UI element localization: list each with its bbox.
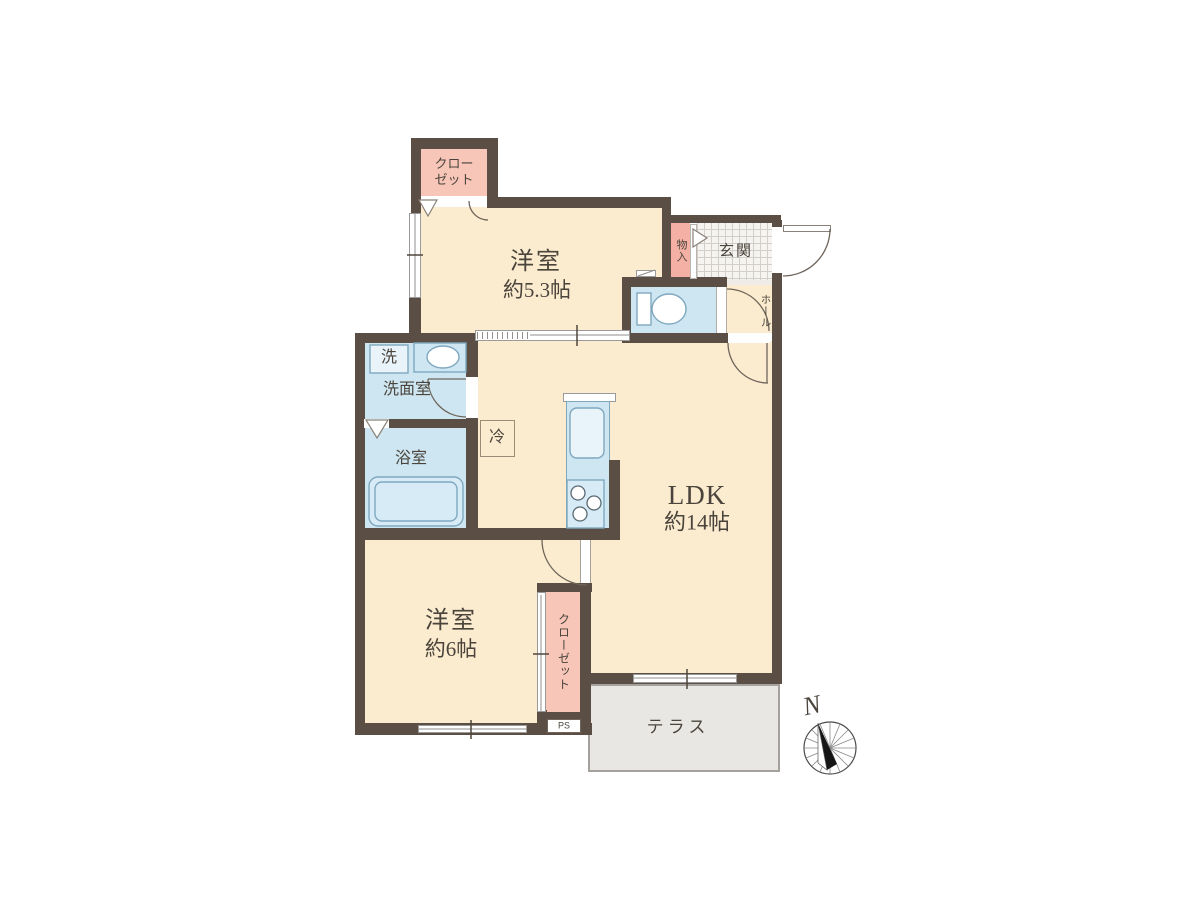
bedroom-6-name: 洋室 bbox=[425, 606, 477, 636]
washroom-label: 洗面室 bbox=[383, 380, 431, 400]
bedroom-6-doorway bbox=[580, 540, 591, 583]
ldk-size: 約14帖 bbox=[664, 508, 730, 536]
closet-bottom-door bbox=[537, 592, 546, 712]
bedroom-53-name: 洋室 bbox=[510, 247, 562, 277]
toilet-vent-notch bbox=[636, 270, 656, 277]
bathroom-label: 浴室 bbox=[395, 449, 427, 469]
wall bbox=[355, 528, 618, 540]
entrance-label: 玄関 bbox=[719, 243, 753, 262]
bedroom-6-size: 約6帖 bbox=[425, 636, 478, 662]
closet-top-label: クロー ゼット bbox=[434, 156, 473, 189]
bedroom-53-size: 約5.3帖 bbox=[503, 277, 571, 303]
entrance-door-leaf bbox=[783, 225, 831, 232]
wall bbox=[466, 343, 478, 540]
bedroom-6-window bbox=[418, 725, 527, 733]
bedroom-53-window bbox=[409, 213, 421, 298]
wall bbox=[355, 333, 478, 343]
compass-needle bbox=[818, 723, 837, 770]
wall bbox=[411, 138, 421, 213]
wall bbox=[609, 460, 620, 540]
wall bbox=[487, 197, 671, 208]
entrance-door-arc bbox=[783, 229, 830, 276]
wall bbox=[662, 197, 671, 287]
entrance-opening bbox=[772, 227, 782, 273]
floor-plan: クロー ゼット 洋室 約5.3帖 物入 玄関 ホール 洗 洗面室 浴室 冷 LD… bbox=[0, 0, 1200, 900]
hall-ldk-doorway bbox=[728, 333, 770, 343]
ldk-terrace-window bbox=[633, 674, 737, 683]
bathroom-door-opening bbox=[364, 419, 389, 428]
closet-bottom-label: クロー ゼット bbox=[556, 613, 573, 691]
refrigerator-label: 冷 bbox=[489, 428, 505, 448]
terrace-label: テラス bbox=[647, 716, 710, 737]
north-label: N bbox=[800, 688, 824, 723]
toilet-floor bbox=[631, 287, 716, 333]
washer-label: 洗 bbox=[381, 348, 397, 368]
pipe-space-label: PS bbox=[558, 720, 570, 731]
toilet-door bbox=[716, 287, 727, 333]
closet-top-door bbox=[421, 196, 487, 204]
storage-label: 物入 bbox=[673, 239, 689, 263]
wall bbox=[487, 138, 498, 198]
sliding-door-hatch bbox=[477, 332, 528, 339]
washroom-door-opening bbox=[466, 377, 478, 418]
hall-label: ホール bbox=[758, 294, 773, 329]
wall bbox=[662, 215, 781, 223]
wall bbox=[772, 273, 782, 684]
compass-icon bbox=[804, 722, 856, 774]
kitchen-counter bbox=[566, 401, 610, 530]
wall bbox=[622, 333, 730, 343]
wall bbox=[622, 277, 727, 287]
storage-door bbox=[690, 224, 697, 279]
bathroom-floor bbox=[365, 428, 466, 528]
wall bbox=[411, 138, 497, 149]
